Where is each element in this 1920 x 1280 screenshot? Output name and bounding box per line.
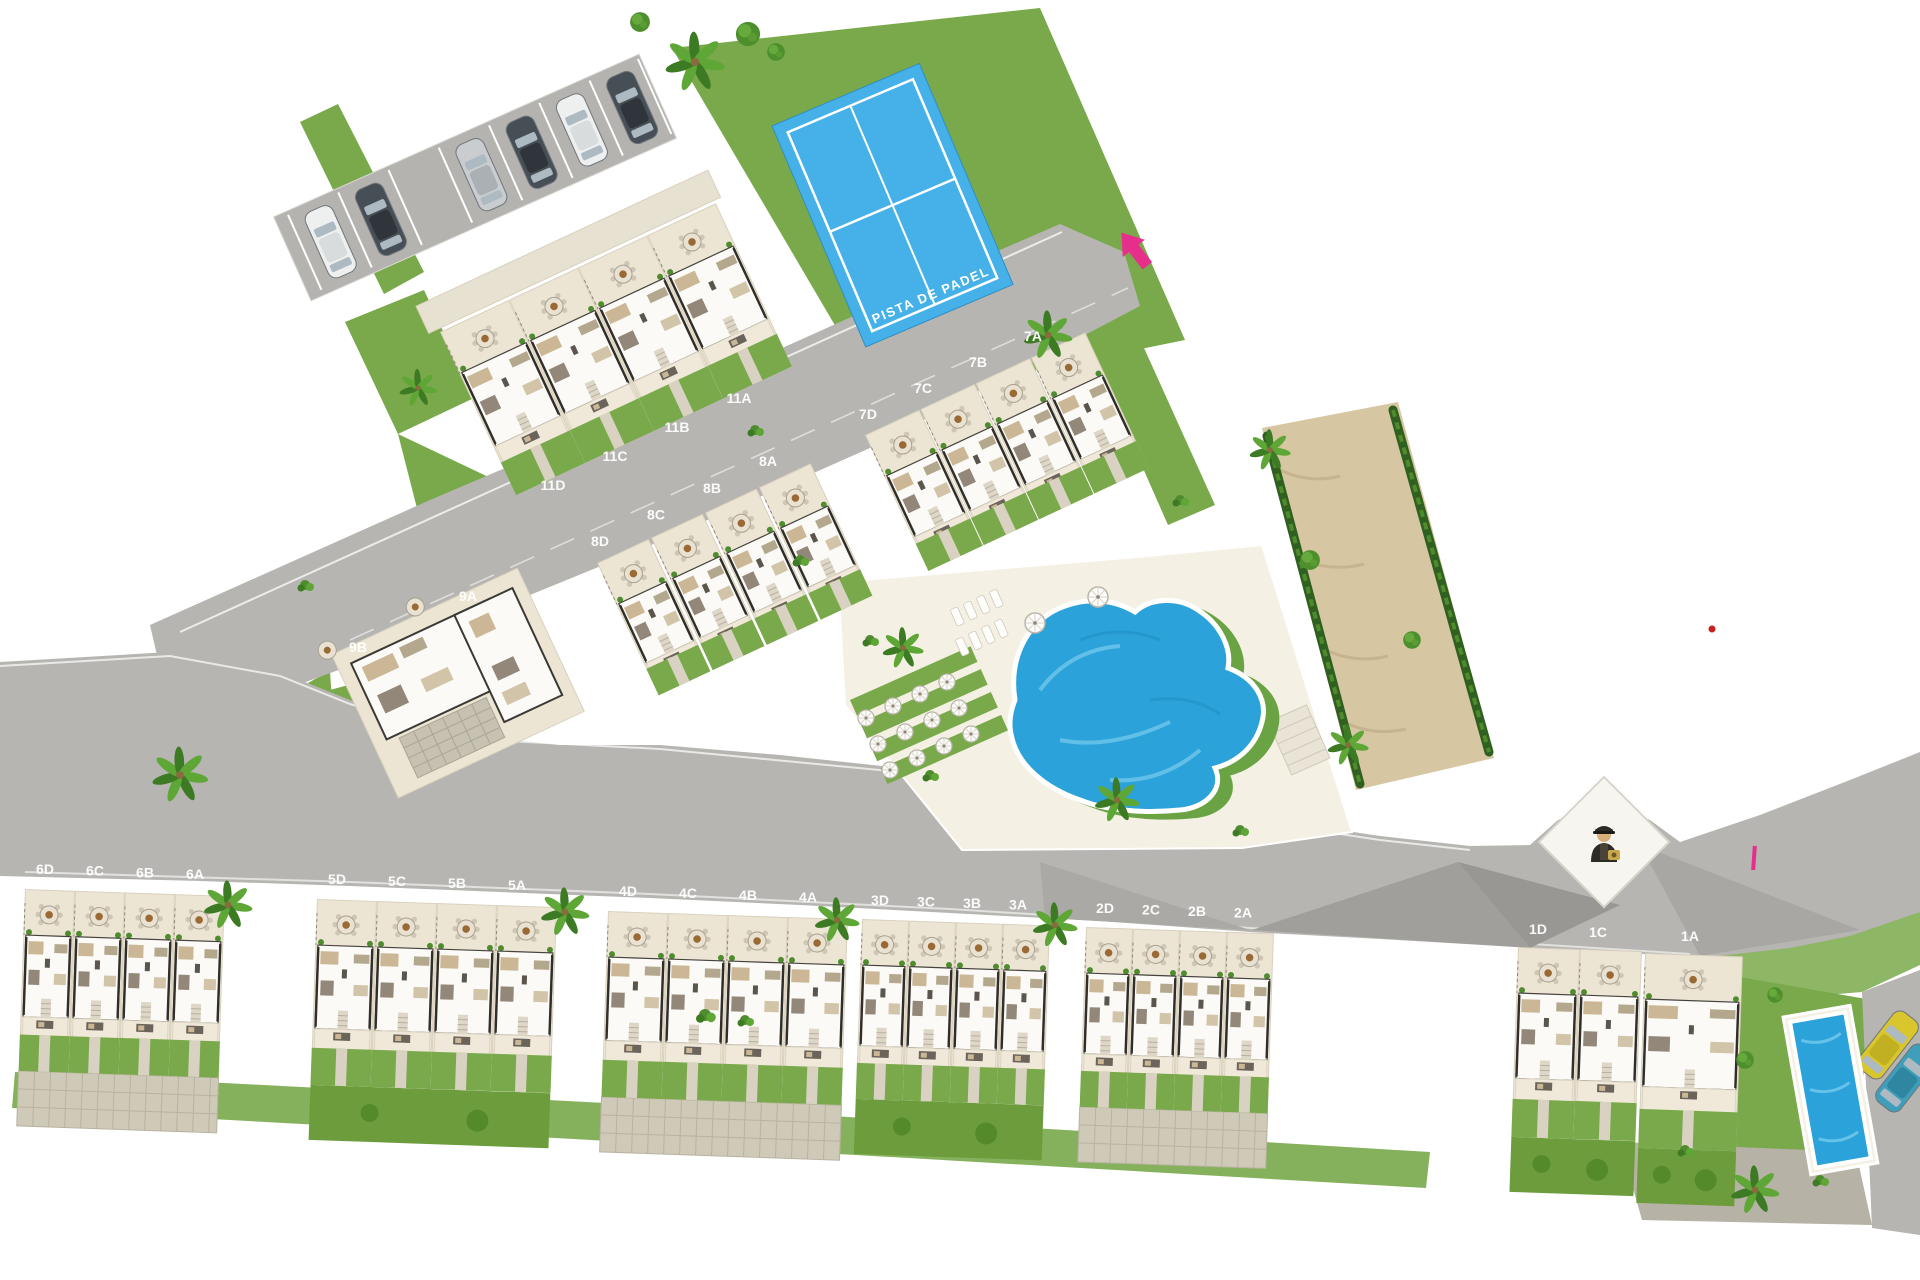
rear-patio [17, 1071, 219, 1133]
round-patio-table-icon [35, 904, 63, 926]
house-unit-6D [19, 889, 75, 1072]
house-unit-6C [69, 891, 125, 1074]
unit-label-5C: 5C [388, 873, 406, 889]
round-patio-table-icon [871, 934, 899, 956]
rear-patio [1636, 1148, 1736, 1206]
unit-label-2C: 2C [1142, 902, 1160, 918]
site-plan: PISTA DE PADEL [0, 0, 1920, 1280]
unit-label-6A: 6A [186, 866, 204, 882]
house-unit-6B [119, 893, 175, 1076]
unit-label-11D: 11D [541, 477, 566, 493]
parasol-icon [882, 762, 898, 778]
house-unit-3B [950, 923, 1003, 1104]
round-patio-table-icon [1236, 946, 1264, 968]
round-patio-table-icon [332, 914, 360, 936]
parasol-icon [1025, 613, 1045, 633]
unit-label-8B: 8B [703, 480, 721, 496]
parasol-icon [858, 710, 874, 726]
unit-label-6D: 6D [36, 861, 54, 877]
round-patio-table-icon [1012, 938, 1040, 960]
unit-label-7D: 7D [859, 406, 877, 422]
unit-label-3B: 3B [963, 895, 981, 911]
unit-label-8A: 8A [759, 453, 777, 469]
round-patio-table-icon [135, 907, 163, 929]
round-patio-table-icon [1189, 945, 1217, 967]
house-unit-1A [1638, 953, 1743, 1151]
house-unit-5D [311, 899, 377, 1086]
unit-label-9: 9A [459, 588, 477, 604]
house-unit-5A [491, 905, 557, 1092]
unit-label-11C: 11C [603, 448, 628, 464]
parasol-icon [939, 674, 955, 690]
parasol-icon [870, 736, 886, 752]
tree-icon [1300, 550, 1320, 570]
unit-label-5D: 5D [328, 871, 346, 887]
unit-label-9: 9B [349, 639, 367, 655]
red-dot-marker [1709, 626, 1716, 633]
parasol-icon [909, 750, 925, 766]
parasol-icon [924, 712, 940, 728]
parasol-icon [885, 698, 901, 714]
house-unit-4B [722, 915, 788, 1102]
round-patio-table-icon [1679, 969, 1707, 991]
tree-icon [1403, 631, 1421, 649]
rear-patio [309, 1085, 551, 1148]
tree-icon [736, 22, 760, 46]
unit-label-4B: 4B [739, 887, 757, 903]
round-patio-table-icon [803, 932, 831, 954]
house-unit-5C [371, 901, 437, 1088]
unit-label-3D: 3D [871, 892, 889, 908]
house-unit-4C [662, 913, 728, 1100]
tree-icon [630, 12, 650, 32]
unit-label-4C: 4C [679, 885, 697, 901]
parasol-icon [897, 724, 913, 740]
house-unit-6A [169, 895, 225, 1078]
unit-label-2B: 2B [1188, 903, 1206, 919]
parasol-icon [951, 700, 967, 716]
round-patio-table-icon [85, 905, 113, 927]
house-unit-2A [1221, 932, 1274, 1113]
round-patio-table-icon [683, 928, 711, 950]
unit-label-4D: 4D [619, 883, 637, 899]
unit-label-7C: 7C [914, 380, 932, 396]
unit-label-5A: 5A [508, 877, 526, 893]
unit-label-4A: 4A [799, 889, 817, 905]
parasol-icon [912, 686, 928, 702]
unit-label-1A: 1A [1681, 928, 1699, 944]
unit-label-11B: 11B [665, 419, 690, 435]
round-patio-table-icon [1534, 962, 1562, 984]
unit-label-1C: 1C [1589, 924, 1607, 940]
house-unit-3D [856, 919, 909, 1100]
unit-label-11A: 11A [727, 390, 752, 406]
rear-patio [1509, 1137, 1635, 1196]
round-patio-table-icon [512, 920, 540, 942]
tree-icon [1767, 987, 1782, 1002]
parasol-icon [963, 726, 979, 742]
house-unit-2D [1080, 927, 1133, 1108]
unit-label-2A: 2A [1234, 905, 1252, 921]
house-unit-1D [1511, 947, 1580, 1139]
tree-icon [1736, 1051, 1754, 1069]
round-patio-table-icon [452, 918, 480, 940]
unit-label-6B: 6B [136, 864, 154, 880]
round-patio-table-icon [1142, 943, 1170, 965]
house-unit-4A [782, 917, 848, 1104]
rear-patio [600, 1097, 842, 1160]
unit-label-7A: 7A [1024, 328, 1042, 344]
parasol-icon [1088, 587, 1108, 607]
unit-label-6C: 6C [86, 863, 104, 879]
unit-label-7B: 7B [969, 354, 987, 370]
round-patio-table-icon [743, 930, 771, 952]
unit-label-2D: 2D [1096, 900, 1114, 916]
house-unit-2B [1174, 931, 1227, 1112]
parasol-icon [936, 738, 952, 754]
tree-icon [767, 43, 785, 61]
unit-label-3A: 3A [1009, 897, 1027, 913]
round-patio-table-icon [623, 926, 651, 948]
house-unit-1C [1573, 949, 1642, 1141]
unit-label-1D: 1D [1529, 921, 1547, 937]
house-unit-5B [431, 903, 497, 1090]
house-unit-3A [997, 924, 1050, 1105]
rear-patio [1078, 1107, 1268, 1169]
rear-patio [854, 1099, 1044, 1161]
house-unit-4D [602, 911, 668, 1098]
round-patio-table-icon [918, 935, 946, 957]
round-patio-table-icon [392, 916, 420, 938]
round-patio-table-icon [965, 937, 993, 959]
unit-label-5B: 5B [448, 875, 466, 891]
house-unit-3C [903, 921, 956, 1102]
house-unit-2C [1127, 929, 1180, 1110]
unit-label-8C: 8C [647, 506, 665, 522]
unit-label-3C: 3C [917, 894, 935, 910]
round-patio-table-icon [1095, 942, 1123, 964]
round-patio-table-icon [1596, 964, 1624, 986]
unit-label-8D: 8D [591, 533, 609, 549]
